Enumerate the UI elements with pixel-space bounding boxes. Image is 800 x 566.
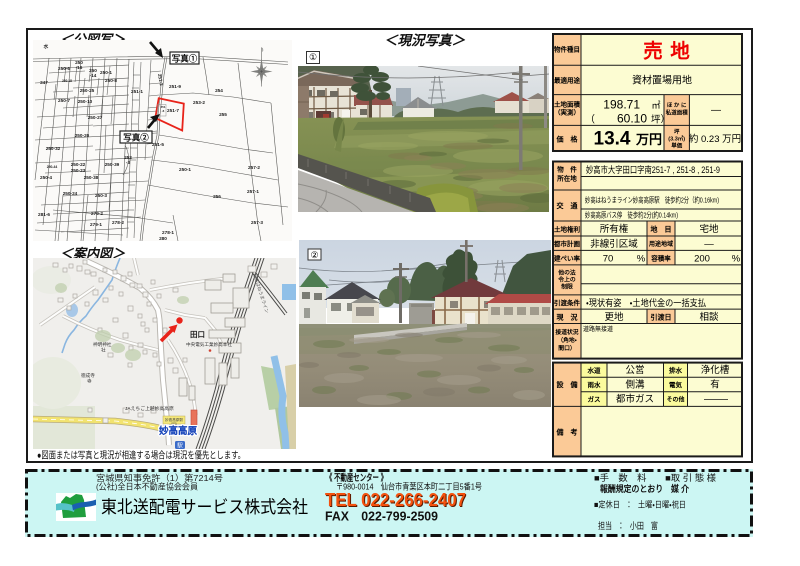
svg-text:250-20: 250-20	[75, 133, 90, 138]
svg-text:土地権利: 土地権利	[554, 224, 581, 233]
svg-text:257-2: 257-2	[248, 165, 260, 170]
svg-text:妙高高原バス停 徒歩約2分(約0.14km): 妙高高原バス停 徒歩約2分(約0.14km)	[585, 210, 678, 220]
svg-text:-14: -14	[90, 73, 97, 78]
svg-text:278-2: 278-2	[112, 220, 124, 225]
svg-text:%: %	[732, 254, 741, 265]
svg-text:―: ―	[711, 105, 721, 116]
svg-text:交 通: 交 通	[557, 201, 579, 210]
svg-text:更地: 更地	[604, 311, 624, 323]
svg-text:60.10: 60.10	[617, 112, 647, 126]
svg-text:所在地: 所在地	[556, 174, 577, 183]
svg-text:（: （	[585, 114, 595, 126]
svg-text:JAえちご上越妙高高原: JAえちご上越妙高高原	[125, 405, 174, 412]
svg-text:13.4: 13.4	[594, 129, 631, 150]
svg-text:浄化槽: 浄化槽	[701, 364, 730, 376]
svg-text:都市計画: 都市計画	[553, 239, 581, 248]
svg-text:250-8: 250-8	[105, 78, 117, 83]
svg-text:257-3: 257-3	[251, 220, 263, 225]
svg-text:247: 247	[40, 80, 48, 85]
svg-text:250-39: 250-39	[105, 162, 120, 167]
svg-text:写真①: 写真①	[172, 54, 198, 64]
svg-text:容積率: 容積率	[651, 254, 671, 263]
svg-text:-6: -6	[162, 109, 165, 113]
svg-text:引渡条件: 引渡条件	[554, 298, 581, 307]
svg-text:(3.3㎡): (3.3㎡)	[668, 135, 685, 143]
svg-text:・現状有姿 ・土地代金の一括支払: ・現状有姿 ・土地代金の一括支払	[586, 297, 706, 308]
svg-text:排水: 排水	[669, 366, 683, 375]
svg-text:資材置場用地: 資材置場用地	[632, 74, 692, 87]
svg-text:令上の: 令上の	[557, 276, 576, 284]
svg-text:250-38: 250-38	[84, 175, 99, 180]
svg-text:用途地域: 用途地域	[648, 240, 673, 248]
svg-text:250-18: 250-18	[62, 79, 72, 83]
svg-text:-16: -16	[76, 65, 83, 70]
svg-text:その他: その他	[666, 396, 684, 404]
svg-text:-3: -3	[126, 160, 131, 165]
svg-text:281-6: 281-6	[38, 212, 50, 217]
svg-text:物 件: 物 件	[557, 165, 577, 174]
svg-text:250-24: 250-24	[63, 191, 78, 196]
svg-text:雨水: 雨水	[588, 380, 602, 389]
svg-text:（角地・: （角地・	[557, 336, 576, 344]
svg-text:279-1: 279-1	[90, 222, 102, 227]
svg-text:制限: 制限	[561, 283, 573, 291]
svg-text:妙高高原: 妙高高原	[159, 425, 198, 437]
svg-text:251-5: 251-5	[152, 142, 164, 147]
svg-text:250-3: 250-3	[95, 193, 107, 198]
svg-text:妙高はねうまライン妙高高原駅 徒歩約2分（約0.16km): 妙高はねうまライン妙高高原駅 徒歩約2分（約0.16km)	[585, 195, 719, 205]
svg-text:水: 水	[43, 43, 49, 50]
svg-text:280: 280	[159, 236, 167, 241]
svg-text:250-1: 250-1	[179, 167, 191, 172]
svg-text:70: 70	[603, 254, 614, 265]
svg-text:250-4: 250-4	[40, 175, 52, 180]
svg-text:単価: 単価	[671, 142, 683, 150]
svg-text:地 目: 地 目	[651, 224, 672, 233]
svg-text:256: 256	[213, 194, 221, 199]
svg-text:257-1: 257-1	[247, 189, 259, 194]
svg-text:250-7: 250-7	[58, 98, 70, 103]
svg-text:250-32: 250-32	[46, 146, 61, 151]
svg-text:都市ガス: 都市ガス	[616, 393, 654, 405]
svg-text:妙高市大字田口字南251-7 , 251-8 , 251-9: 妙高市大字田口字南251-7 , 251-8 , 251-9	[586, 164, 720, 175]
svg-text:250-1: 250-1	[100, 70, 112, 75]
svg-text:建ぺい率: 建ぺい率	[553, 254, 581, 263]
svg-text:250-25: 250-25	[80, 88, 95, 93]
svg-text:売: 売	[643, 40, 663, 63]
svg-text:側溝: 側溝	[625, 379, 645, 391]
svg-text:道路無接道: 道路無接道	[583, 325, 613, 333]
svg-text:―: ―	[704, 239, 714, 250]
svg-text:坪: 坪	[674, 128, 680, 136]
svg-text:公営: 公営	[625, 364, 644, 376]
svg-text:250-27: 250-27	[88, 115, 103, 120]
svg-text:約 0.23 万円: 約 0.23 万円	[689, 133, 741, 145]
svg-text:ガス: ガス	[588, 395, 601, 404]
svg-text:物件種目: 物件種目	[554, 45, 580, 54]
svg-text:土地面積: 土地面積	[554, 100, 581, 109]
svg-text:万円: 万円	[635, 132, 662, 147]
svg-text:社: 社	[101, 347, 106, 354]
svg-text:㎡: ㎡	[651, 101, 660, 111]
svg-text:250-44: 250-44	[47, 165, 58, 169]
svg-text:（実測）: （実測）	[554, 108, 580, 117]
svg-text:278-1: 278-1	[162, 230, 174, 235]
svg-text:相談: 相談	[699, 311, 719, 323]
svg-text:279-2: 279-2	[91, 211, 103, 216]
svg-text:255: 255	[219, 112, 227, 117]
svg-text:所有権: 所有権	[600, 223, 629, 235]
svg-text:250-22: 250-22	[71, 162, 86, 167]
svg-text:254: 254	[215, 88, 223, 93]
svg-text:②: ②	[310, 250, 318, 260]
svg-text:有: 有	[710, 379, 720, 391]
svg-text:宅地: 宅地	[699, 223, 719, 235]
svg-text:251-9: 251-9	[169, 84, 181, 89]
svg-text:250-10: 250-10	[78, 99, 93, 104]
svg-text:253-2: 253-2	[193, 100, 205, 105]
svg-text:198.71: 198.71	[603, 98, 640, 112]
svg-text:251-1: 251-1	[131, 89, 143, 94]
svg-text:ほ か に: ほ か に	[667, 102, 687, 109]
svg-text:間口）: 間口）	[558, 344, 575, 352]
svg-text:電気: 電気	[669, 380, 683, 389]
svg-text:寺: 寺	[87, 379, 92, 384]
svg-text:地: 地	[670, 40, 690, 63]
svg-text:私道面積: 私道面積	[666, 109, 689, 117]
svg-text:備 考: 備 考	[556, 428, 578, 437]
svg-text:引渡日: 引渡日	[651, 312, 672, 321]
svg-text:非線引区域: 非線引区域	[590, 238, 638, 250]
svg-text:接道状況: 接道状況	[555, 328, 578, 336]
svg-text:●図面または写真と現況が相違する場合は現況を優先とします。: ●図面または写真と現況が相違する場合は現況を優先とします。	[37, 449, 245, 462]
svg-text:水道: 水道	[587, 366, 602, 375]
svg-text:他の法: 他の法	[557, 269, 576, 277]
svg-text:写真②: 写真②	[123, 133, 149, 143]
svg-text:中央電気工業妙高本社: 中央電気工業妙高本社	[186, 341, 232, 348]
svg-text:田口: 田口	[190, 330, 205, 339]
svg-text:251-7: 251-7	[167, 108, 179, 113]
svg-text:価 格: 価 格	[556, 135, 579, 144]
svg-text:現 況: 現 況	[557, 312, 578, 321]
svg-text:%: %	[637, 254, 646, 265]
svg-text:250-23: 250-23	[71, 168, 86, 173]
svg-text:250-6: 250-6	[58, 66, 70, 71]
svg-text:設 備: 設 備	[557, 380, 578, 389]
svg-text:200: 200	[694, 254, 710, 265]
svg-text:最適用途: 最適用途	[554, 76, 581, 85]
